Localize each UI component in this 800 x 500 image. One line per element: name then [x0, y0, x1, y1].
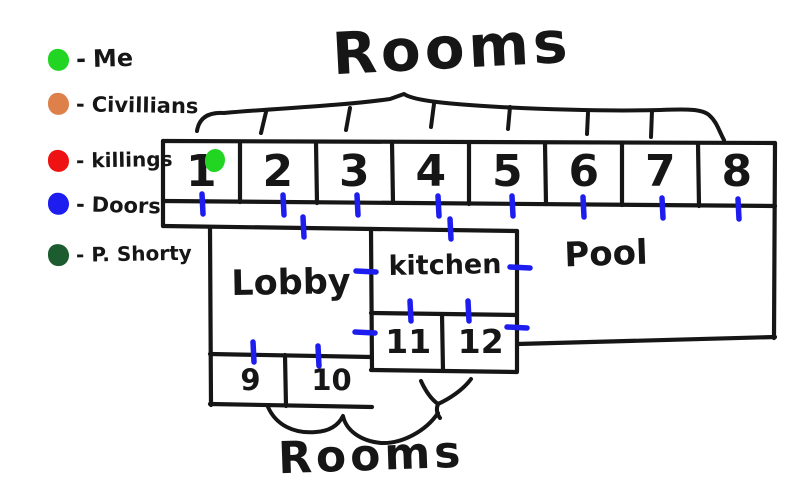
room-label-11: 11 [372, 316, 445, 368]
room-label-6: 6 [546, 143, 623, 201]
pool-label: Pool [519, 231, 692, 277]
rooms-top-title: Rooms [330, 8, 573, 88]
brace-tick [651, 111, 652, 137]
door-marker [738, 199, 739, 219]
wall-910-bottom [210, 404, 372, 407]
rooms-top-brace [197, 94, 724, 140]
legend-dash: - [76, 92, 85, 116]
rooms-11-12-strip: 11 12 [372, 316, 517, 368]
room-label-3: 3 [316, 143, 393, 201]
legend-item-doors: - Doors [48, 192, 161, 219]
brace-tick [346, 108, 350, 130]
legend-label-me: Me [93, 44, 134, 73]
room-label-5: 5 [469, 143, 546, 201]
legend-dash: - [76, 148, 85, 172]
killings-dot-icon [48, 150, 69, 172]
legend-label-civillians: Civillians [92, 92, 199, 118]
legend-item-me: - Me [48, 44, 134, 74]
room-label-8: 8 [699, 143, 776, 201]
lobby-label: Lobby [210, 262, 373, 305]
room-label-9: 9 [210, 357, 291, 403]
room-label-4: 4 [393, 143, 470, 201]
wall-pool-bottom [517, 337, 775, 344]
room-label-10: 10 [291, 357, 372, 403]
legend-label-killings: killings [91, 147, 173, 172]
rooms-1-8-strip: 1 2 3 4 5 6 7 8 [163, 143, 775, 201]
legend-item-civillians: - Civillians [48, 92, 199, 119]
legend-dash: - [76, 243, 85, 267]
brace-stroke [421, 379, 471, 404]
rooms-bottom-title: Rooms [277, 427, 465, 484]
brace-tick [431, 104, 434, 127]
legend-item-p-shorty: - P. Shorty [48, 241, 192, 268]
door-marker [303, 217, 304, 237]
legend-dash: - [76, 45, 87, 73]
rooms-9-10-strip: 9 10 [210, 357, 372, 403]
p-shorty-dot-icon [48, 244, 69, 266]
wall-corridor-bottom [163, 226, 517, 231]
legend-label-p-shorty: P. Shorty [91, 241, 192, 267]
kitchen-label: kitchen [372, 249, 519, 283]
brace-tick [587, 113, 588, 134]
brace-tick [508, 107, 510, 129]
wall-1112-bottom [371, 370, 517, 372]
room-label-1: 1 [163, 143, 240, 201]
room-label-2: 2 [240, 143, 317, 201]
civillians-dot-icon [48, 93, 69, 115]
legend-label-doors: Doors [91, 193, 161, 219]
me-dot-icon [48, 49, 70, 72]
door-marker [450, 219, 451, 239]
brace-stroke [437, 404, 440, 418]
hand-drawn-floor-plan: - Me - Civillians - killings - Doors - P… [0, 0, 800, 500]
room-label-12: 12 [445, 316, 518, 368]
legend-dash: - [76, 192, 85, 216]
brace-stroke [197, 94, 724, 140]
doors-dot-icon [48, 193, 70, 216]
legend-item-killings: - killings [48, 147, 173, 173]
room-label-7: 7 [622, 143, 699, 201]
door-marker [662, 198, 663, 218]
brace-tick [261, 112, 266, 133]
